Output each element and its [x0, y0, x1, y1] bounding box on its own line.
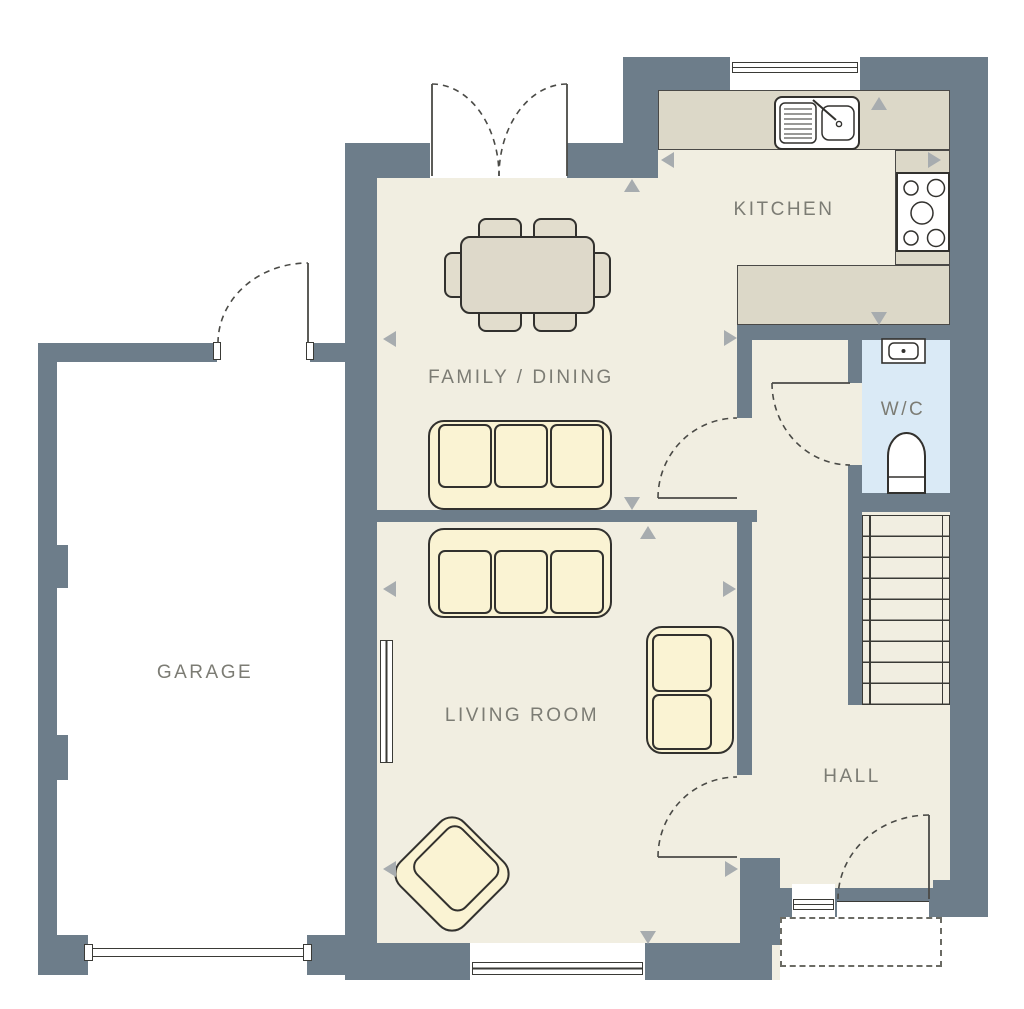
garage-wall [38, 343, 57, 975]
sofa-cushion [438, 550, 492, 614]
room-label-garage: GARAGE [157, 662, 253, 684]
sofa-cushion [550, 550, 604, 614]
door-jamb [306, 342, 314, 360]
garage-wall [38, 935, 88, 975]
kitchen-window-glazing [732, 62, 858, 73]
living-room-window-glazing [472, 962, 643, 975]
wall [740, 858, 780, 945]
dimension-arrow [661, 152, 674, 168]
wall [623, 57, 658, 178]
dimension-arrow [383, 581, 396, 597]
dimension-arrow [871, 97, 887, 110]
kitchen-counter-top [658, 90, 950, 150]
kitchen-counter-bottom [737, 265, 950, 325]
porch-canopy-outline [780, 917, 942, 967]
garage-wall [38, 343, 217, 362]
dining-table [460, 236, 595, 314]
garage-wall [307, 935, 345, 975]
garage-wall-pier [57, 735, 68, 780]
sofa-cushion [652, 634, 712, 692]
dimension-arrow [383, 331, 396, 347]
front-door-threshold [837, 901, 929, 917]
dimension-arrow [624, 497, 640, 510]
dimension-arrow [725, 861, 738, 877]
wall [933, 880, 988, 917]
wall [950, 57, 988, 880]
dimension-arrow [624, 179, 640, 192]
sofa-cushion [494, 550, 548, 614]
dimension-arrow [724, 330, 737, 346]
room-label-wc: W/C [881, 399, 925, 421]
sofa-cushion [652, 694, 712, 750]
door-jamb [84, 944, 93, 961]
french-door-opening [430, 84, 567, 178]
room-label-living-room: LIVING ROOM [445, 705, 599, 727]
floor-plan: KITCHEN FAMILY / DINING W/C GARAGE LIVIN… [0, 0, 1024, 1009]
room-label-kitchen: KITCHEN [734, 199, 835, 221]
room-label-family-dining: FAMILY / DINING [428, 367, 614, 389]
wall [848, 340, 862, 383]
dimension-arrow [383, 861, 396, 877]
kitchen-counter-right [895, 150, 950, 265]
wall [737, 325, 950, 340]
dimension-arrow [871, 312, 887, 325]
wall [848, 512, 862, 705]
sofa-cushion [494, 424, 548, 488]
dimension-arrow [640, 931, 656, 944]
room-label-hall: HALL [823, 766, 881, 788]
door-jamb [303, 944, 312, 961]
dimension-arrow [640, 526, 656, 539]
dimension-arrow [928, 152, 941, 168]
wall [737, 338, 752, 418]
garage-wall-pier [57, 545, 68, 588]
door-jamb [213, 342, 221, 360]
wall [345, 510, 757, 522]
stairs [862, 515, 950, 705]
wall [345, 143, 377, 975]
garage-side-door-swing [218, 263, 308, 343]
dimension-arrow [723, 581, 736, 597]
hall-window-glazing [793, 899, 834, 910]
wall [737, 512, 752, 775]
radiator [380, 640, 393, 763]
sofa-cushion [550, 424, 604, 488]
garage-door [88, 948, 307, 957]
garage-wall [310, 343, 345, 362]
wall [848, 493, 952, 512]
sofa-cushion [438, 424, 492, 488]
